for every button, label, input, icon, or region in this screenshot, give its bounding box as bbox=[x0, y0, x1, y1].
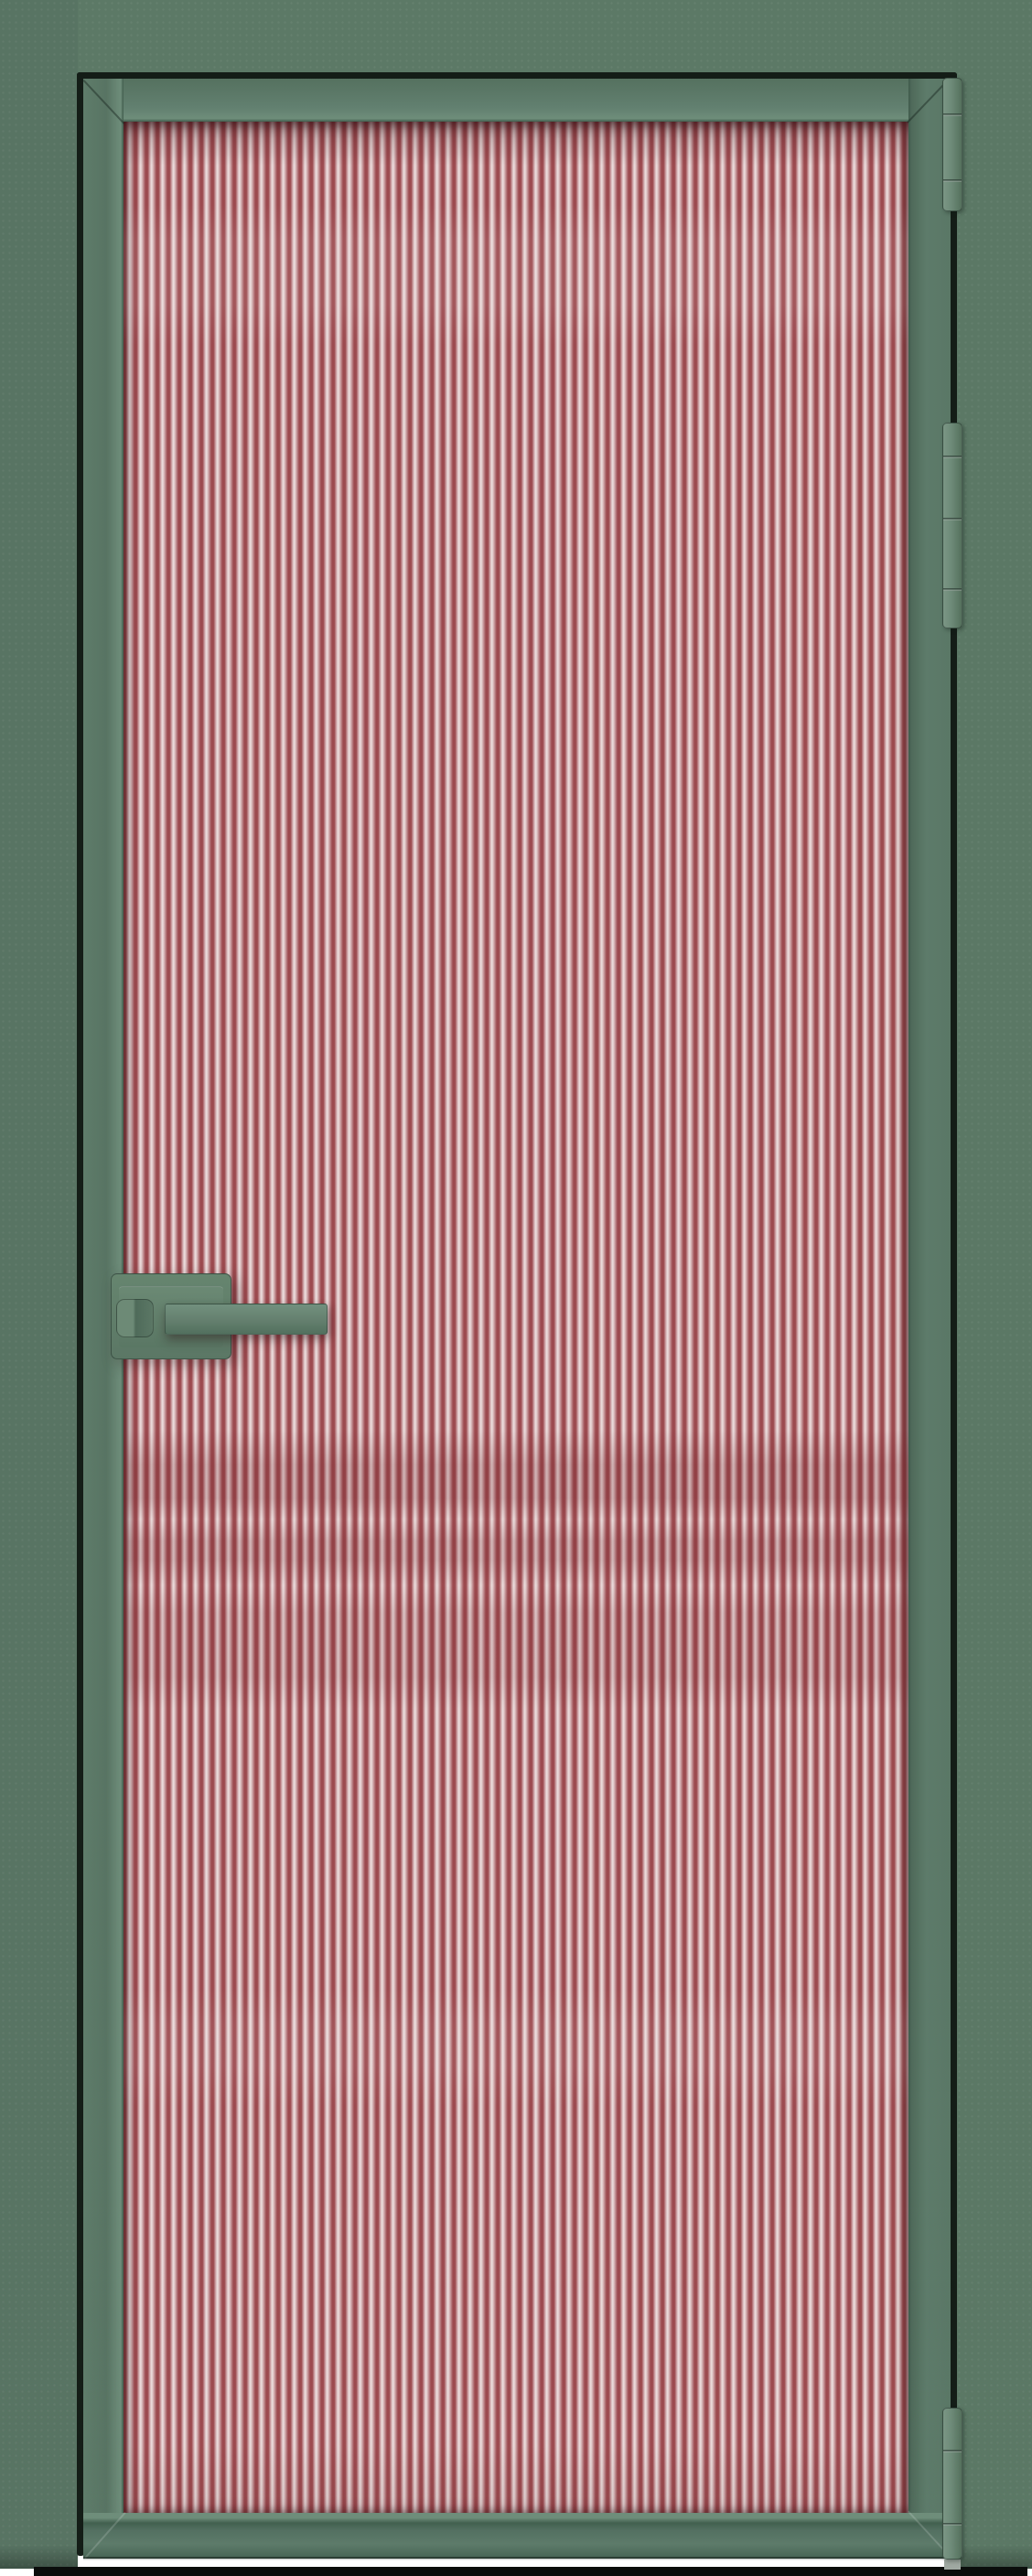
hinge-top bbox=[942, 78, 962, 211]
door-product-photo bbox=[0, 0, 1032, 2576]
hinge-floor-shadow bbox=[944, 2560, 961, 2570]
hinge-knuckle-line bbox=[943, 179, 962, 182]
hinge-knuckle-line bbox=[943, 588, 962, 591]
leaf-rail-top bbox=[83, 79, 951, 122]
door-casing-right bbox=[956, 0, 1032, 2569]
door-casing-top bbox=[0, 0, 1032, 73]
floor-shadow-line bbox=[34, 2567, 1027, 2576]
door-bottom-edge-shadow bbox=[83, 2557, 951, 2560]
hinge-knuckle-line bbox=[943, 2450, 962, 2453]
hinge-knuckle-line bbox=[943, 456, 962, 458]
thumbturn-knob bbox=[116, 1299, 154, 1337]
door-casing-left bbox=[0, 0, 78, 2569]
hinge-bottom bbox=[942, 2408, 962, 2560]
leaf-rail-bottom bbox=[83, 2513, 951, 2559]
hinge-knuckle-line bbox=[943, 2523, 962, 2526]
handle-lever bbox=[165, 1304, 328, 1335]
hinge-knuckle-line bbox=[943, 518, 962, 521]
hinge-middle bbox=[942, 423, 962, 628]
hinge-knuckle-line bbox=[943, 113, 962, 116]
